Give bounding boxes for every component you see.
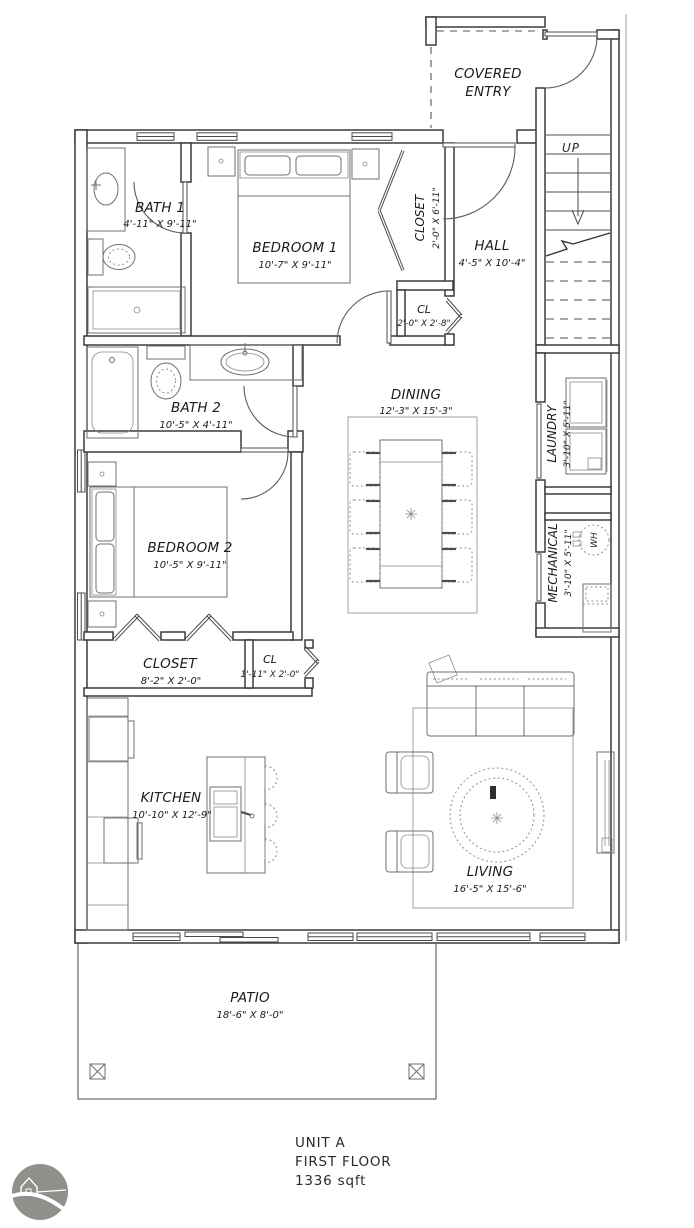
bathtub-icon: [87, 347, 138, 438]
bath2-door: [244, 386, 297, 437]
laundry-label: LAUNDRY: [545, 404, 559, 463]
patio-outline: [78, 943, 436, 1099]
sofa-icon: [427, 655, 574, 736]
plant-icon: [491, 812, 503, 824]
mechanical-dims: 3'-10" X 5'-11": [563, 529, 574, 596]
closet1-bifold-icon: [378, 150, 404, 271]
window-icon: [540, 931, 585, 942]
toilet-icon: [88, 239, 135, 275]
living-label: LIVING: [467, 864, 513, 880]
bedroom2-label: BEDROOM 2: [147, 540, 232, 556]
closet1-label: CLOSET: [413, 193, 427, 241]
stool-icon: [265, 804, 277, 828]
bedroom2-door: [241, 448, 288, 499]
armchair-icon: [386, 831, 433, 872]
window-icon: [437, 931, 530, 942]
bedroom1-door: [337, 291, 391, 343]
patio-dims: 18'-6" X 8'-0": [217, 1010, 284, 1021]
covered-entry-label: COVERED: [454, 66, 522, 82]
cl2-bifold-icon: [304, 646, 319, 677]
furnace-icon: [583, 584, 611, 632]
window-icon: [352, 131, 392, 142]
area-label: 1336 sqft: [295, 1173, 366, 1189]
centerpiece-icon: [405, 508, 417, 520]
floor-title: FIRST FLOOR: [295, 1154, 391, 1170]
room-labels: COVERED ENTRY UP HALL 4'-5" X 10'-4" BAT…: [123, 66, 600, 1021]
cl1-dims: 2'-0" X 2'-8": [397, 319, 450, 329]
window-icon: [197, 131, 237, 142]
sliding-door-icon: [184, 931, 280, 942]
unit-title: UNIT A: [295, 1135, 346, 1151]
kitchen-dims: 10'-10" X 12'-9": [132, 810, 212, 821]
toilet-icon: [147, 346, 185, 399]
kitchen-label: KITCHEN: [141, 790, 202, 806]
window-icon: [133, 931, 180, 942]
side-table-icon: [490, 786, 496, 799]
closet2-dims: 8'-2" X 2'-0": [141, 676, 202, 687]
closet1-dims: 2'-0" X 6'-11": [431, 187, 442, 249]
bedroom1-dims: 10'-7" X 9'-11": [258, 260, 331, 271]
bath1-dims: 4'-11" X 9'-11": [123, 219, 196, 230]
laundry-dims: 3'-10" X 5'-11": [562, 400, 573, 467]
cl2-label: CL: [263, 653, 277, 666]
vanity-sink-icon: [87, 148, 125, 231]
chair-icon: [350, 452, 380, 486]
cl1-label: CL: [417, 303, 431, 316]
staircase: [546, 135, 610, 338]
closet2-label: CLOSET: [143, 656, 198, 672]
stair-door: [545, 32, 597, 88]
bath2-dims: 10'-5" X 4'-11": [159, 420, 232, 431]
chair-icon: [350, 548, 380, 582]
dining-dims: 12'-3" X 15'-3": [379, 406, 452, 417]
bath2-label: BATH 2: [171, 400, 221, 416]
chair-icon: [350, 500, 380, 534]
bedroom2-dims: 10'-5" X 9'-11": [153, 560, 226, 571]
chair-icon: [442, 548, 472, 582]
window-icon: [137, 131, 174, 142]
dining-label: DINING: [391, 387, 441, 403]
window-icon: [76, 450, 86, 492]
floor-plan-document: COVERED ENTRY UP HALL 4'-5" X 10'-4" BAT…: [0, 0, 694, 1228]
patio-label: PATIO: [230, 990, 270, 1006]
range-icon: [104, 818, 142, 863]
armchair-icon: [386, 752, 433, 793]
hall-dims: 4'-5" X 10'-4": [459, 258, 526, 269]
builder-logo-icon: [9, 1164, 68, 1220]
bath1-fixtures: [87, 148, 185, 333]
hall-label: HALL: [474, 238, 509, 254]
patio-post-icon: [409, 1064, 424, 1079]
up-arrow-icon: [572, 158, 584, 224]
water-heater-label: WH: [590, 532, 600, 548]
covered-entry-label-2: ENTRY: [465, 84, 512, 100]
stairs-up-label: UP: [562, 141, 580, 155]
stool-icon: [265, 839, 277, 863]
chair-icon: [442, 500, 472, 534]
window-icon: [308, 931, 353, 942]
bedroom1-label: BEDROOM 1: [252, 240, 337, 256]
stool-icon: [265, 766, 277, 790]
vanity-sink-icon: [190, 343, 302, 380]
patio-post-icon: [90, 1064, 105, 1079]
dining-table-icon: [348, 417, 477, 613]
window-icon: [357, 931, 432, 942]
cl2-dims: 1'-11" X 2'-0": [241, 670, 300, 680]
chair-icon: [442, 452, 472, 486]
mechanical-label: MECHANICAL: [546, 523, 560, 602]
title-block: UNIT A FIRST FLOOR 1336 sqft: [295, 1135, 391, 1189]
living-dims: 16'-5" X 15'-6": [453, 884, 526, 895]
fridge-icon: [89, 717, 134, 761]
bath1-label: BATH 1: [135, 200, 185, 216]
shower-icon: [88, 287, 185, 333]
kitchen-island-icon: [207, 757, 265, 873]
